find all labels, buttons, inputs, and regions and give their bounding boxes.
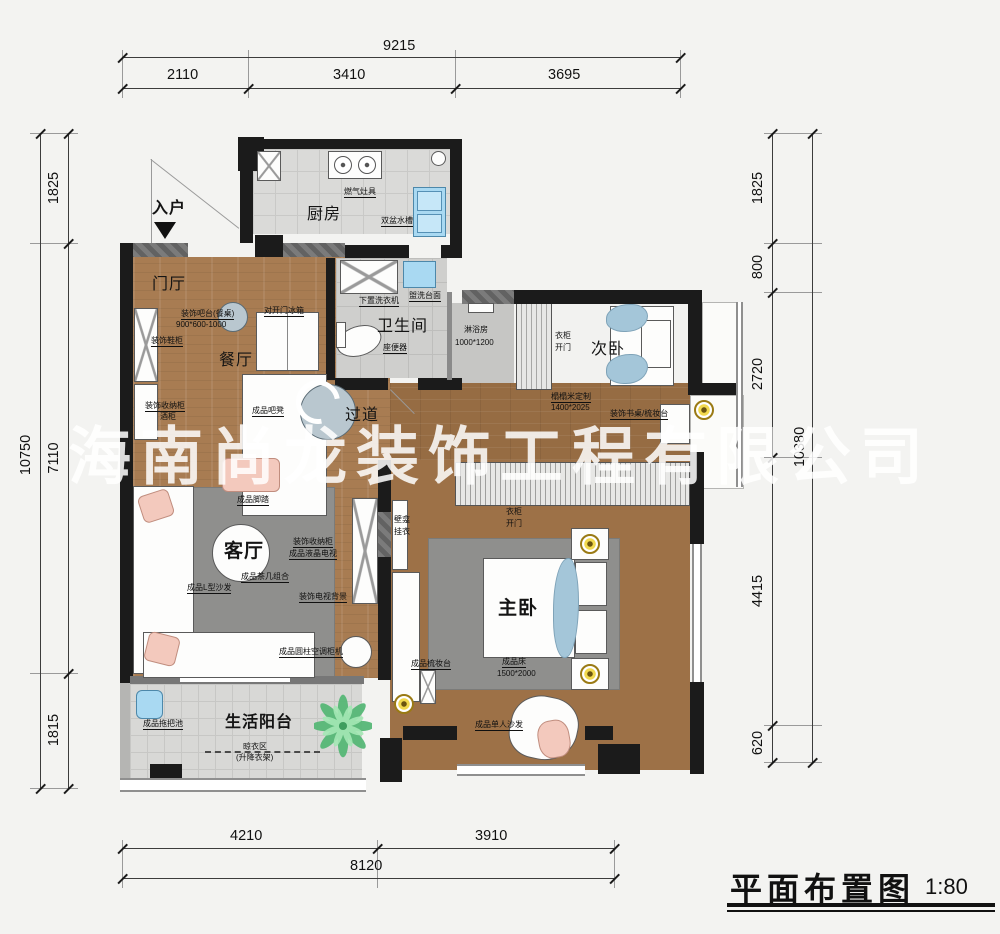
shower-door xyxy=(468,303,494,313)
living-label: 客厅 xyxy=(224,540,264,564)
dressing-stool xyxy=(420,670,436,704)
drying-sub-label: (升降衣架) xyxy=(236,753,273,763)
wall-bath-left xyxy=(326,258,335,380)
master-pillow-top xyxy=(575,562,607,606)
bed-label: 成品床 xyxy=(502,657,526,668)
lamp-dresser xyxy=(394,694,414,714)
wall-master-right-bottom xyxy=(690,682,704,774)
kitchen-light xyxy=(431,151,446,166)
wall-bath-top-b xyxy=(441,245,462,258)
dimension-line xyxy=(30,673,78,674)
title-underline-thick xyxy=(727,903,995,907)
floor-plan-canvas: 入户厨房门厅餐厅卫生间淋浴房1000*1200次卧过道客厅主卧生活阳台燃气灶具双… xyxy=(0,0,1000,934)
dimension-value: 4415 xyxy=(750,575,766,607)
dimension-value: 2720 xyxy=(750,358,766,390)
wall-master-bottom-a xyxy=(403,726,457,740)
window-master-bottom xyxy=(457,764,585,776)
wall-kitchen-right xyxy=(450,139,462,249)
dimension-value: 2110 xyxy=(167,67,198,83)
storage-cabinet2-label: 装饰收纳柜 xyxy=(293,537,333,548)
window-balcony-bottom xyxy=(120,778,366,792)
dimension-value: 10750 xyxy=(18,435,34,475)
sink-bowl-bottom xyxy=(417,214,442,233)
bath-label: 卫生间 xyxy=(377,317,428,337)
wall-bedroom2-right xyxy=(688,290,702,392)
stove-burner-left xyxy=(334,156,352,174)
master-pillow-bottom xyxy=(575,610,607,654)
watermark: 海南尚龙装饰工程有限公司 xyxy=(68,407,932,498)
wall-balcony-left xyxy=(120,683,130,778)
wardrobe-m-label: 衣柜 xyxy=(506,507,522,517)
wall-kitchen-left xyxy=(240,171,253,243)
wall-tv-c xyxy=(378,625,391,680)
dimension-value: 1825 xyxy=(750,172,766,204)
dimension-line xyxy=(40,133,41,788)
toilet-tank xyxy=(336,322,346,348)
single-sofa-label: 成品单人沙发 xyxy=(475,720,523,731)
balcony-label: 生活阳台 xyxy=(225,713,293,733)
dimension-line xyxy=(30,133,78,134)
entry-arrow-icon xyxy=(154,222,176,239)
double-sink-label: 双盆水槽 xyxy=(381,216,413,227)
balcony-slider-gap xyxy=(180,678,290,682)
dresser-label: 成品梳妆台 xyxy=(411,659,451,670)
wall-master-bottom-d xyxy=(598,744,640,774)
dining-label: 餐厅 xyxy=(219,351,253,371)
dimension-value: 800 xyxy=(750,255,766,279)
hang-label: 挂衣 xyxy=(394,527,410,537)
dimension-value: 1825 xyxy=(46,172,62,204)
dimension-value: 8120 xyxy=(350,858,382,874)
fridge-divider xyxy=(287,313,288,370)
drying-label: 晾衣区 xyxy=(243,742,267,752)
dimension-line xyxy=(122,848,614,849)
dimension-line xyxy=(122,88,680,89)
bar-table-label: 装饰吧台(餐桌) xyxy=(181,309,234,320)
tv-wall-label: 装饰电视背景 xyxy=(299,592,347,603)
dimension-value: 3695 xyxy=(548,67,580,83)
kitchen-counter-hatch xyxy=(257,151,281,181)
wall-bedroom2-top xyxy=(514,290,690,304)
dressing-table xyxy=(392,572,420,702)
shower-size-label: 1000*1200 xyxy=(455,338,494,348)
kitchen-label: 厨房 xyxy=(307,205,341,225)
dimension-value: 9215 xyxy=(383,38,415,54)
wall-entry-block xyxy=(255,235,283,257)
ac-unit xyxy=(340,636,372,668)
wall-master-bottom-b xyxy=(380,738,402,782)
label-label: 入户 xyxy=(152,199,186,219)
bath-sink xyxy=(403,261,436,288)
wall-bath-top-a xyxy=(345,245,409,258)
shoe-cabinet-label: 装饰鞋柜 xyxy=(151,336,183,347)
bar-table-size-label: 900*600-1000 xyxy=(176,320,226,330)
toilet-label: 座便器 xyxy=(383,343,407,354)
dimension-value: 1815 xyxy=(46,714,62,746)
ac-label: 成品圆柱空调柜机 xyxy=(279,647,343,658)
wall-bath-shower-divider xyxy=(447,292,452,380)
wall-bedroom2-top-stone xyxy=(462,290,514,304)
mop-sink xyxy=(136,690,163,719)
dimension-value: 620 xyxy=(750,731,766,755)
wall-bath-bottom-b xyxy=(418,378,462,390)
mop-sink-label: 成品拖把池 xyxy=(143,719,183,730)
wardrobe2-label: 衣柜 xyxy=(555,331,571,341)
washer xyxy=(340,260,398,294)
wall-tv-stone xyxy=(378,512,391,557)
dimension-line xyxy=(30,243,78,244)
dimension-value: 4210 xyxy=(230,828,262,844)
bed-size-label: 1500*2000 xyxy=(497,669,536,679)
fridge-label: 对开门冰箱 xyxy=(264,306,304,317)
tv-label: 成品液晶电视 xyxy=(289,549,337,560)
tatami-label: 榻榻米定制 xyxy=(551,392,591,403)
wall-master-bottom-c xyxy=(585,726,613,740)
dimension-line xyxy=(122,878,614,879)
washer-label: 下置洗衣机 xyxy=(359,296,399,307)
dimension-value: 7110 xyxy=(46,442,62,473)
lamp-nightstand-bottom xyxy=(580,664,600,684)
tea-table-label: 成品茶几组合 xyxy=(241,572,289,583)
sink-bowl-top xyxy=(417,191,442,211)
niche-label: 壁龛 xyxy=(394,515,410,525)
dimension-line xyxy=(122,57,680,58)
shower-label: 淋浴房 xyxy=(464,325,488,335)
sofa-l-label: 成品L型沙发 xyxy=(187,583,231,594)
wardrobe-m-open-label: 开门 xyxy=(506,519,522,529)
drawing-scale: 1:80 xyxy=(925,874,968,900)
gas-stove-label: 燃气灶具 xyxy=(344,187,376,198)
dimension-value: 3410 xyxy=(333,67,365,83)
wardrobe2-open-label: 开门 xyxy=(555,343,571,353)
lamp-nightstand-top xyxy=(580,534,600,554)
wall-kitchen-top xyxy=(262,139,452,149)
master-label: 主卧 xyxy=(498,597,538,621)
dimension-line xyxy=(30,788,78,789)
dimension-value: 3910 xyxy=(475,828,507,844)
wall-tv-b xyxy=(378,557,391,625)
wall-wing-bottom xyxy=(688,383,738,395)
foyer-label: 门厅 xyxy=(152,275,186,295)
wash-counter-label: 盥洗台面 xyxy=(409,291,441,302)
bedroom2-label: 次卧 xyxy=(591,340,625,360)
tv-cabinet xyxy=(352,498,378,604)
bedroom2-wardrobe xyxy=(516,303,552,390)
plant xyxy=(314,688,372,764)
wall-under-kitchen xyxy=(283,243,345,257)
window-master-right xyxy=(692,544,702,682)
stove-burner-right xyxy=(358,156,376,174)
title-underline-thin xyxy=(727,910,995,912)
